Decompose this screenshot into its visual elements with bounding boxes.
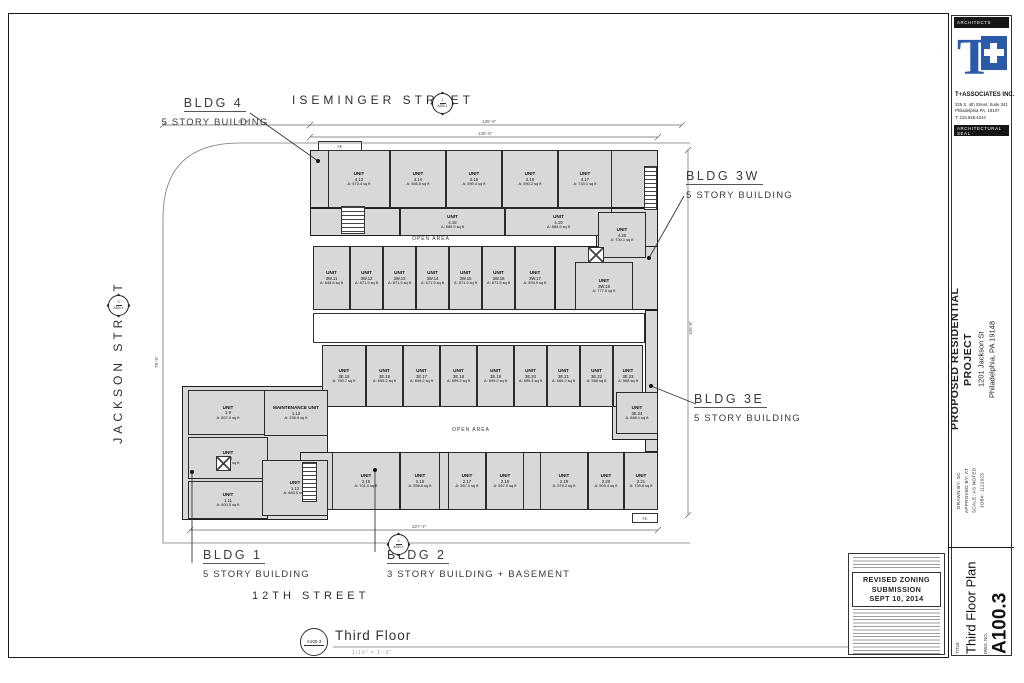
unit-area: A: 600.0 sq ft [217,503,240,508]
unit-area: A: 594.9 sq ft [524,281,547,286]
project-address-line2: Philadelphia, PA 19148 [987,263,998,455]
unit-area: A: 671.9 sq ft [487,281,510,286]
bldg-name: BLDG 3W [686,169,763,185]
note-fine-print-bottom [853,609,940,655]
unit-box: UNIT3E.21A: 666.2 sq ft [547,345,580,407]
unit-area: A: 700.1 sq ft [611,238,634,243]
unit-box: UNIT1.12A: 683.5 sq ft [262,460,328,516]
submission-note-box: REVISED ZONING SUBMISSION SEPT 10, 2014 [848,553,945,655]
unit-area: A: 739.8 sq ft [630,484,653,489]
unit-area: A: 688.1 sq ft [626,416,649,421]
submission-stamp: REVISED ZONING SUBMISSION SEPT 10, 2014 [852,572,941,607]
unit-box: UNIT1.9A: 607.0 sq ft [188,390,268,435]
project-title-block: PROPOSED RESIDENTIAL PROJECT 1201 Jackso… [949,263,1013,455]
unit-box: UNIT3W.16A: 671.9 sq ft [482,246,515,310]
drawing-scale: SCALE: AS NOTED [971,438,979,543]
unit-box: UNIT4.18A: 585.9 sq ft [400,208,505,236]
unit-area: A: 585.9 sq ft [441,225,464,230]
drawing-sheet: { "plan": { "unit_word": "UNIT", "street… [0,0,1024,683]
unit-area: A: 568 sq ft [587,379,607,384]
unit-box: UNIT3W.12A: 671.9 sq ft [350,246,383,310]
project-title-line2: PROJECT [962,263,975,455]
bldg-name: BLDG 1 [203,548,265,564]
bldg-1-label: BLDG 1 5 STORY BUILDING [203,546,310,582]
unit-box: UNIT1.11A: 600.0 sq ft [188,481,268,519]
logo-plus-icon [981,36,1007,70]
unit-box: UNIT3E.24A: 688.1 sq ft [616,392,658,434]
approved-by: APPROVED BY: AT [963,438,971,543]
elevator-icon [216,456,231,471]
sheet-title-block: TITLE Third Floor Plan DWG. NO. A100.3 [953,549,1013,654]
unit-box: UNIT4.20A: 700.1 sq ft [598,212,646,258]
unit-area: A: 645.6 sq ft [320,281,343,286]
view-scale: 1/16" = 1'-0" [352,650,392,656]
unit-box: UNIT2.17A: 567.0 sq ft [448,452,486,510]
unit-box: UNIT2.16A: 556.8 sq ft [400,452,440,510]
unit-box: UNIT3E.18A: 699.2 sq ft [440,345,477,407]
unit-box: UNIT2.20A: 503.4 sq ft [588,452,624,510]
title-block: ARCHITECTS T T+ASSOCIATES INC. 325 S. 4t… [948,13,1014,658]
unit-area: A: 503.4 sq ft [595,484,618,489]
submission-line1: REVISED ZONING [853,575,940,585]
fe-label: FE [642,516,647,521]
unit-area: A: 750.7 sq ft [333,379,356,384]
bldg-sub: 5 STORY BUILDING [162,117,269,128]
bldg-sub: 5 STORY BUILDING [694,413,801,424]
bldg-sub: 5 STORY BUILDING [203,569,310,580]
unit-box: UNIT2.19A: 579.2 sq ft [540,452,588,510]
bldg-sub: 3 STORY BUILDING + BASEMENT [387,569,570,580]
view-marker-circle: A100.3 [300,628,328,656]
unit-box: UNIT3E.16A: 699.2 sq ft [366,345,403,407]
drawing-info-block: DRAWN BY: SC APPROVED BY: AT SCALE: AS N… [955,438,1009,543]
unit-box: UNIT4.17A: 733.1 sq ft [558,150,612,208]
unit-area: A: 556.8 sq ft [409,484,432,489]
project-address-line1: 1201 Jackson St [975,263,986,455]
unit-box: UNIT3W.17A: 594.9 sq ft [515,246,555,310]
view-marker-number: A100.3 [304,639,325,646]
marker-circle: 3 A200.1 [388,534,409,555]
bldg-3w-label: BLDG 3W 5 STORY BUILDING [686,167,793,203]
unit-area: A: 671.9 sq ft [388,281,411,286]
marker-circle: 1 A200.1 [432,93,453,114]
unit-area: A: 671.9 sq ft [421,281,444,286]
stair-icon [341,206,365,234]
unit-area: A: 701.0 sq ft [355,484,378,489]
unit-area: A: 567.0 sq ft [456,484,479,489]
unit-box: UNIT3W.14A: 671.9 sq ft [416,246,449,310]
fe-box: FE [632,513,658,523]
section-marker: 3 A200.1 [106,293,130,317]
marker-circle: 3 A200.1 [108,295,129,316]
unit-area: A: 607.0 sq ft [217,416,240,421]
fe-box: FE [318,141,362,151]
unit-box: UNIT3E.19A: 699.2 sq ft [477,345,514,407]
unit-box: UNIT4.14A: 566.5 sq ft [390,150,446,208]
bldg-name: BLDG 4 [184,96,246,112]
submission-line3: SEPT 10, 2014 [853,594,940,604]
bldg-4-label: BLDG 4 5 STORY BUILDING [155,94,275,130]
seal-header-bar: ARCHITECTURAL SEAL [954,125,1009,136]
firm-name: T+ASSOCIATES INC. [955,92,1014,98]
unit-box: UNIT4.15A: 590.4 sq ft [446,150,502,208]
unit-area: A: 590.2 sq ft [519,182,542,187]
bldg-name: BLDG 3E [694,392,767,408]
unit-box: UNIT3W.15A: 671.9 sq ft [449,246,482,310]
unit-box: UNIT3E.17A: 699.2 sq ft [403,345,440,407]
sheet-title: Third Floor Plan [963,553,981,654]
title-section-divider [949,547,1014,548]
drawn-by: DRAWN BY: SC [955,438,963,543]
unit-box: UNIT4.19A: 585.9 sq ft [505,208,612,236]
unit-box: UNIT2.18A: 557.0 sq ft [486,452,524,510]
street-label-12th: 12TH STREET [252,590,369,602]
unit-area: A: 699.2 sq ft [447,379,470,384]
dwg-no: A100.3 [991,553,1012,654]
open-area-label: OPEN AREA [452,427,490,433]
unit-area: A: 777.0 sq ft [593,289,616,294]
section-marker: 1 A200.1 [430,91,454,115]
section-marker: 3 A200.1 [386,532,410,556]
unit-area: A: 296.9 sq ft [285,416,308,421]
unit-box: UNIT2.15A: 701.0 sq ft [332,452,400,510]
project-title-line1: PROPOSED RESIDENTIAL [949,263,962,455]
note-fine-print-top [853,557,940,570]
firm-address: 325 S. 4th Street, Suite 341 Philadelphi… [955,102,1008,121]
unit-area: A: 699.4 sq ft [519,379,542,384]
unit-box: UNIT3W.18A: 777.0 sq ft [575,262,633,310]
unit-area: A: 585.9 sq ft [547,225,570,230]
bldg-2-label: BLDG 2 3 STORY BUILDING + BASEMENT [387,546,570,582]
architects-header-bar: ARCHITECTS [954,17,1009,28]
unit-box: UNIT3W.13A: 671.9 sq ft [383,246,416,310]
unit-area: A: 557.0 sq ft [494,484,517,489]
marker-sheet: A200.1 [393,545,403,550]
unit-area: A: 699.2 sq ft [410,379,433,384]
elevator-icon [588,247,604,263]
unit-area: A: 590.4 sq ft [463,182,486,187]
open-area-label: OPEN AREA [412,236,450,242]
stair-icon [302,462,317,502]
marker-sheet: A200.1 [113,306,123,311]
job-number: JOB#: 1112023 [978,438,986,543]
bldg-3e-label: BLDG 3E 5 STORY BUILDING [694,390,801,426]
unit-area: A: 579.2 sq ft [553,484,576,489]
unit-area: A: 699.2 sq ft [484,379,507,384]
unit-box: UNIT3E.15A: 750.7 sq ft [322,345,366,407]
submission-line2: SUBMISSION [853,585,940,595]
unit-area: A: 568 sq ft [618,379,638,384]
fe-label: FE [337,144,342,149]
title-label: TITLE [953,553,963,654]
courtyard-outline [313,313,645,343]
unit-box: UNIT2.21A: 739.8 sq ft [624,452,658,510]
unit-area: A: 573.4 sq ft [348,182,371,187]
firm-logo: T [957,34,1007,88]
unit-box: UNIT4.16A: 590.2 sq ft [502,150,558,208]
view-title: Third Floor [335,628,411,643]
stair-icon [644,166,657,210]
unit-area: A: 666.2 sq ft [552,379,575,384]
marker-sheet: A200.1 [437,104,447,109]
unit-area: A: 733.1 sq ft [574,182,597,187]
unit-box: UNIT3W.11A: 645.6 sq ft [313,246,350,310]
firm-phone: T: 215.629.4244 [955,115,1008,121]
unit-area: A: 671.9 sq ft [454,281,477,286]
unit-box: UNIT3E.22A: 568 sq ft [580,345,613,407]
unit-box: MAINTENANCE UNIT1.13A: 296.9 sq ft [264,390,328,436]
unit-area: A: 699.2 sq ft [373,379,396,384]
bldg-sub: 5 STORY BUILDING [686,190,793,201]
unit-box: UNIT4.13A: 573.4 sq ft [328,150,390,208]
unit-box: UNIT3E.20A: 699.4 sq ft [514,345,547,407]
unit-area: A: 671.9 sq ft [355,281,378,286]
unit-area: A: 566.5 sq ft [407,182,430,187]
